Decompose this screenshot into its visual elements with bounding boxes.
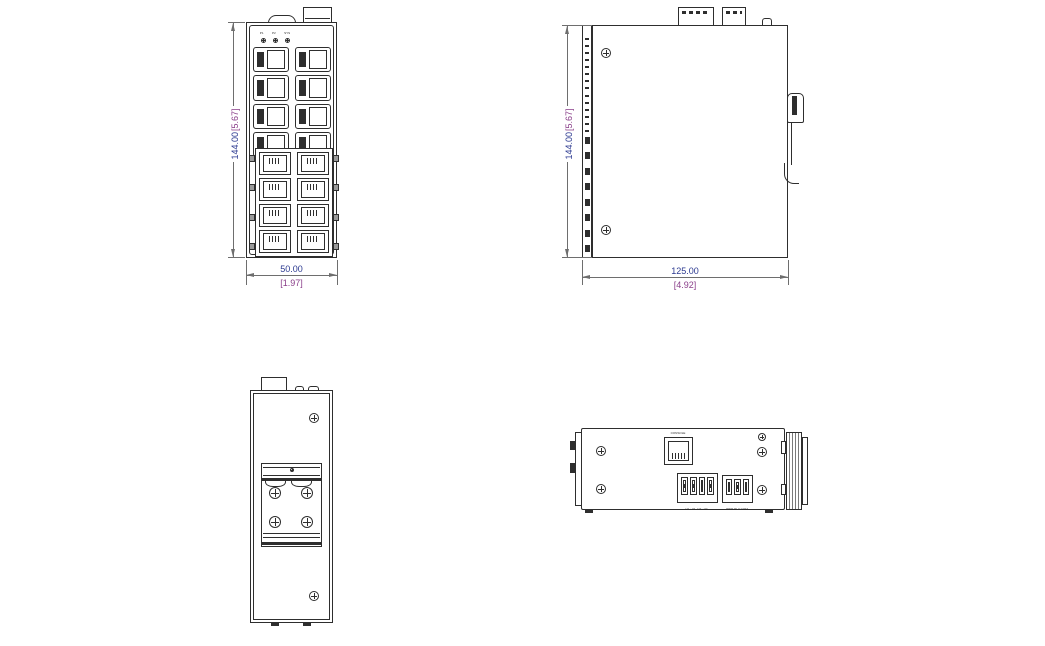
port-tab	[333, 214, 339, 221]
vent-l	[585, 214, 590, 221]
height-mm: 144.00	[564, 132, 574, 160]
rj45-port	[259, 204, 291, 227]
height-in: [5.67]	[230, 108, 240, 131]
dim-arrow	[231, 249, 235, 257]
vent-s	[585, 45, 589, 47]
terminal-block-side	[722, 7, 746, 25]
chassis-screw	[601, 48, 611, 58]
led-label-2: P2	[272, 31, 276, 34]
vent-s	[585, 130, 589, 132]
chassis-screw	[757, 447, 767, 457]
port-tab	[570, 463, 576, 473]
power-terminal-block-1	[677, 473, 718, 503]
vent-l	[585, 245, 590, 252]
vent-s	[585, 95, 589, 97]
power-terminal-block-2	[722, 475, 753, 503]
bracket-pin	[290, 468, 294, 472]
bracket-screw	[301, 516, 313, 528]
port-tab	[249, 243, 255, 250]
din-clip-slot	[792, 96, 797, 115]
bracket-bottom-line	[263, 533, 320, 534]
rear-view	[240, 375, 350, 635]
din-bracket-flange	[802, 437, 808, 505]
chassis-screw	[596, 484, 606, 494]
console-port	[664, 437, 693, 465]
vent-l	[585, 168, 590, 175]
led-indicator	[261, 38, 266, 43]
rj45-port-grid	[259, 152, 329, 253]
vent-s	[585, 73, 589, 75]
led-labels: P1 P2 SYS	[260, 31, 290, 34]
terminal-block-protrusion	[303, 7, 332, 23]
rj45-port	[297, 230, 329, 253]
side-view: 144.00 [5.67] 125.00 [4.92]	[550, 5, 830, 300]
vent-s	[585, 102, 589, 104]
vent-l	[585, 199, 590, 206]
dimensional-drawing-canvas: P1 P2 SYS 144.00 [5.67] 50.00 [1.97]	[0, 0, 1045, 646]
side-enclosure	[592, 25, 788, 258]
din-clip-hook	[784, 163, 799, 184]
rj45-port	[297, 152, 329, 175]
vent-s	[585, 59, 589, 61]
port-id-tabs-right	[333, 155, 339, 250]
led-label-3: SYS	[284, 31, 290, 34]
dim-arrow	[582, 275, 590, 279]
led-indicator	[285, 38, 290, 43]
mounting-foot	[585, 510, 593, 513]
width-dim-line	[582, 277, 788, 278]
port-tab	[333, 184, 339, 191]
vent-l	[585, 152, 590, 159]
port-id-tabs-left	[249, 155, 255, 250]
width-dim-line	[246, 275, 337, 276]
rj45-port	[297, 204, 329, 227]
dim-arrow	[329, 273, 337, 277]
ext-line	[337, 260, 338, 285]
ext-line	[788, 260, 789, 285]
vent-s	[585, 116, 589, 118]
dim-arrow	[231, 23, 235, 31]
dim-arrow	[246, 273, 254, 277]
port-tab	[249, 214, 255, 221]
sfp-port	[295, 47, 331, 72]
port-tab	[333, 155, 339, 162]
pin	[690, 477, 697, 495]
vent-l	[585, 230, 590, 237]
side-width-mm: 125.00	[582, 266, 788, 276]
terminal-block-line	[305, 18, 330, 19]
dim-arrow	[565, 249, 569, 257]
pin	[699, 477, 706, 495]
chassis-screw	[757, 485, 767, 495]
height-mm: 144.00	[230, 132, 240, 160]
port-tab	[333, 243, 339, 250]
front-height-dimension: 144.00 [5.67]	[230, 106, 240, 162]
vent-s	[585, 38, 589, 40]
ext-tick	[562, 257, 592, 258]
vent-s	[585, 66, 589, 68]
rj45-port	[297, 178, 329, 201]
pin	[743, 479, 749, 495]
port-tab	[249, 184, 255, 191]
front-width-in: [1.97]	[246, 278, 337, 288]
sfp-port	[253, 104, 289, 129]
bracket-bottom-line	[263, 537, 320, 538]
pin	[707, 477, 714, 495]
side-width-in: [4.92]	[582, 280, 788, 290]
terminal-block-protrusion	[261, 377, 287, 391]
sfp-port-grid	[253, 47, 331, 157]
power-terminal-label-2: PWR RLY COM	[722, 507, 752, 510]
bracket-spring-line	[263, 475, 320, 476]
chassis-screw	[601, 225, 611, 235]
front-view: P1 P2 SYS 144.00 [5.67] 50.00 [1.97]	[222, 5, 362, 300]
vent-slots-small	[584, 38, 590, 132]
terminal-block-side	[678, 7, 714, 25]
vent-s	[585, 87, 589, 89]
mounting-foot	[765, 510, 773, 513]
sfp-port	[295, 75, 331, 100]
dim-arrow	[780, 275, 788, 279]
vent-s	[585, 80, 589, 82]
din-bracket-top	[786, 432, 802, 510]
pin	[726, 479, 732, 495]
bracket-screw	[269, 516, 281, 528]
top-view: CONSOLE V1+ V1- V2+ V2- PWR RLY COM	[560, 425, 825, 525]
sfp-port	[253, 47, 289, 72]
front-width-mm: 50.00	[246, 264, 337, 274]
port-tab	[570, 441, 576, 450]
led-label-1: P1	[260, 31, 264, 34]
mounting-foot	[303, 623, 311, 626]
port-openings-side	[584, 137, 590, 252]
console-label: CONSOLE	[663, 431, 693, 434]
height-in: [5.67]	[564, 108, 574, 131]
vent-s	[585, 123, 589, 125]
ground-screw-side	[762, 18, 772, 25]
vent-s	[585, 109, 589, 111]
pin	[681, 477, 688, 495]
power-terminal-label-1: V1+ V1- V2+ V2-	[682, 507, 712, 510]
bracket-bottom-band	[261, 542, 322, 545]
dim-arrow	[565, 26, 569, 34]
led-indicator	[273, 38, 278, 43]
vent-l	[585, 183, 590, 190]
sfp-port	[295, 104, 331, 129]
chassis-screw	[309, 591, 319, 601]
rj45-port	[259, 152, 291, 175]
din-clip-plate	[791, 123, 792, 165]
mounting-foot	[271, 623, 279, 626]
bracket-screw	[301, 487, 313, 499]
rj45-port	[259, 230, 291, 253]
port-tab	[249, 155, 255, 162]
chassis-screw	[309, 413, 319, 423]
rj45-port	[259, 178, 291, 201]
chassis-screw	[758, 433, 766, 441]
pin	[734, 479, 740, 495]
vent-s	[585, 52, 589, 54]
bracket-screw	[269, 487, 281, 499]
chassis-screw	[596, 446, 606, 456]
vent-l	[585, 137, 590, 144]
side-height-dimension: 144.00 [5.67]	[564, 106, 574, 162]
ext-tick	[228, 257, 245, 258]
sfp-port	[253, 75, 289, 100]
